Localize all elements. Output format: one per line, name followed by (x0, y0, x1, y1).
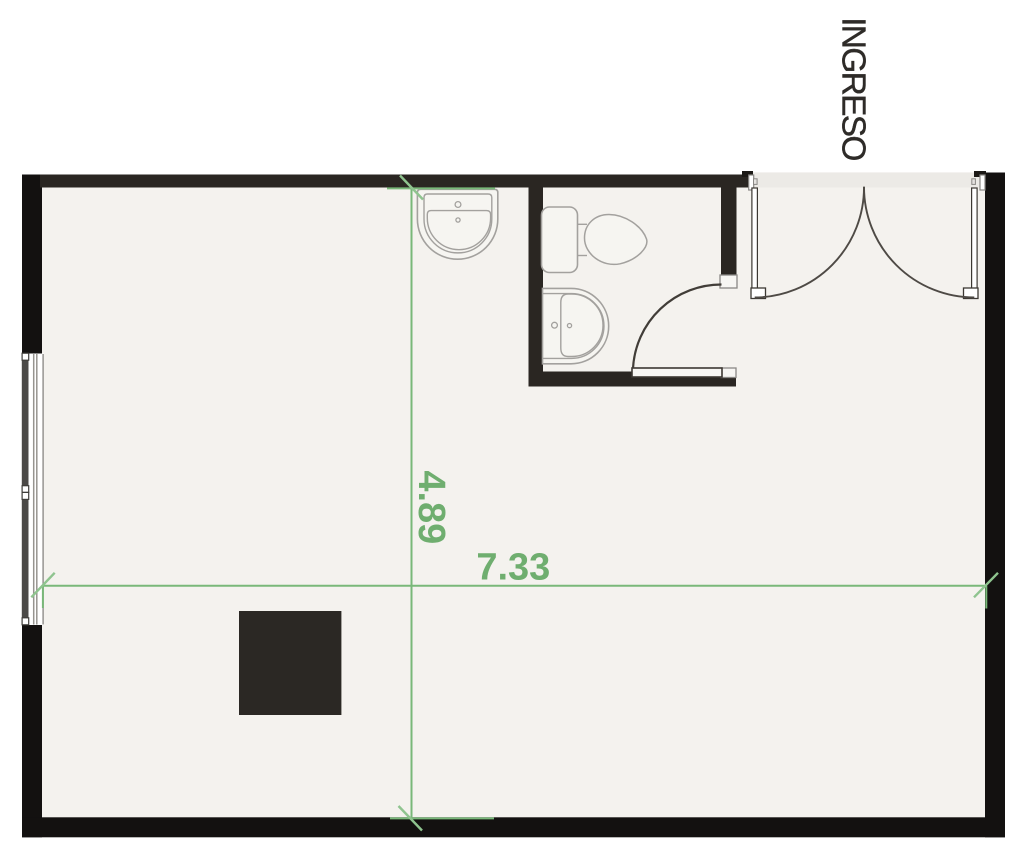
svg-text:7.33: 7.33 (476, 547, 550, 589)
svg-text:4.89: 4.89 (410, 470, 452, 544)
svg-text:INGRESO: INGRESO (835, 17, 872, 160)
